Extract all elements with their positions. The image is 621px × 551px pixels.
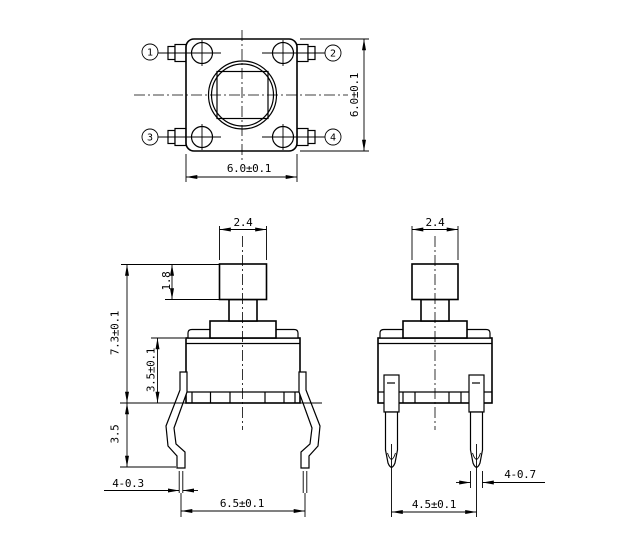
front-view-body	[186, 338, 300, 403]
front-view-collar	[210, 321, 276, 338]
pin-balloon-2: 2	[325, 45, 341, 61]
front-total-height-label: 7.3±0.1	[109, 311, 122, 355]
pin-balloon-3: 3	[142, 129, 158, 145]
front-lead-thickness-label: 4-0.3	[112, 477, 144, 490]
side-lead-pitch-dimension: 4.5±0.1	[392, 498, 477, 512]
front-total-height-dimension: 7.3±0.1	[109, 265, 128, 404]
top-view-width-dimension: 6.0±0.1	[186, 154, 297, 182]
front-body-height-label: 3.5±0.1	[145, 348, 158, 392]
pin-1-label: 1	[147, 48, 153, 59]
top-width-dim-label: 6.0±0.1	[227, 162, 271, 175]
side-button-width-label: 2.4	[426, 216, 446, 229]
top-view: 1 2 3 4 6.0±0.1 6.0±0.1	[134, 30, 369, 182]
side-lead-width-label: 4-0.7	[504, 468, 536, 481]
front-lead-length-dimension: 3.5	[109, 403, 177, 467]
front-lead-span-dimension: 6.5±0.1	[181, 493, 305, 517]
technical-drawing-page: 1 2 3 4 6.0±0.1 6.0±0.1	[0, 0, 621, 551]
pin-3-label: 3	[147, 133, 153, 144]
front-lead-span-label: 6.5±0.1	[220, 497, 264, 510]
front-button-width-dimension: 2.4	[220, 216, 267, 260]
side-lead-pitch-label: 4.5±0.1	[412, 498, 456, 511]
top-view-body	[186, 39, 297, 151]
pin-2-label: 2	[330, 49, 336, 60]
pin-4-label: 4	[330, 133, 336, 144]
front-lead-thickness-note: 4-0.3	[104, 477, 198, 491]
front-button-width-label: 2.4	[234, 216, 254, 229]
side-lead-width-note: 4-0.7	[456, 468, 545, 488]
front-view-button-cap	[220, 264, 267, 300]
front-button-height-dimension: 1.8	[121, 265, 229, 300]
pin-balloon-1: 1	[142, 44, 158, 60]
front-view-stem	[229, 300, 257, 322]
technical-drawing: 1 2 3 4 6.0±0.1 6.0±0.1	[0, 0, 621, 551]
front-view: 2.4 1.8 7.3±0.1 3.5±0.1 3.5	[104, 216, 322, 517]
front-lead-length-label: 3.5	[109, 425, 122, 444]
pin-balloon-4: 4	[325, 129, 341, 145]
top-height-dim-label: 6.0±0.1	[348, 73, 361, 117]
front-button-height-label: 1.8	[160, 272, 173, 291]
side-view: 2.4 4-0.7 4.5±0.1	[378, 216, 545, 517]
